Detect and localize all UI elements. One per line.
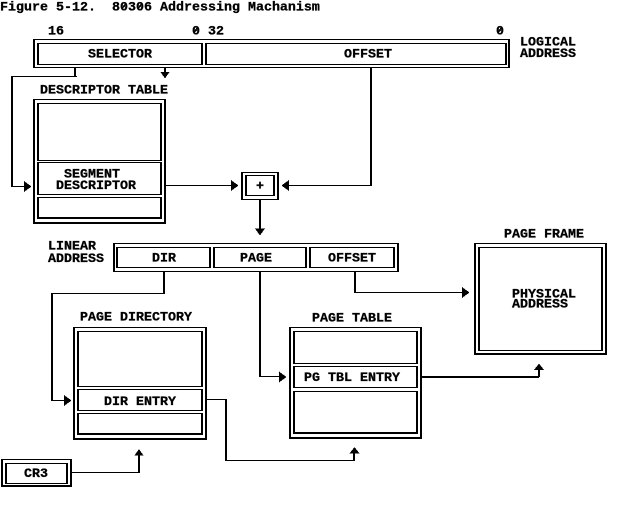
svg-text:OFFSET: OFFSET xyxy=(328,252,376,267)
svg-text:+: + xyxy=(256,180,264,195)
svg-text:ADDRESS: ADDRESS xyxy=(48,252,104,267)
svg-text:Figure 5-12. 80306 Addressing: Figure 5-12. 80306 Addressing Machanism xyxy=(0,1,320,16)
svg-text:PAGE FRAME: PAGE FRAME xyxy=(504,228,584,243)
svg-text:DESCRIPTOR TABLE: DESCRIPTOR TABLE xyxy=(40,84,168,99)
svg-text:ADDRESS: ADDRESS xyxy=(512,298,568,313)
svg-text:OFFSET: OFFSET xyxy=(344,48,392,63)
svg-text:16: 16 xyxy=(48,24,64,39)
svg-text:DIR: DIR xyxy=(152,252,176,267)
svg-text:DESCRIPTOR: DESCRIPTOR xyxy=(56,179,136,194)
svg-text:PAGE: PAGE xyxy=(240,252,272,267)
svg-text:SELECTOR: SELECTOR xyxy=(88,48,152,63)
svg-text:PAGE DIRECTORY: PAGE DIRECTORY xyxy=(80,311,192,326)
svg-text:PG TBL ENTRY: PG TBL ENTRY xyxy=(304,371,400,386)
svg-text:DIR ENTRY: DIR ENTRY xyxy=(104,395,176,410)
svg-text:CR3: CR3 xyxy=(24,467,48,482)
svg-text:0 32: 0 32 xyxy=(192,24,224,39)
svg-text:PAGE TABLE: PAGE TABLE xyxy=(312,311,392,326)
svg-text:0: 0 xyxy=(496,24,504,39)
svg-text:ADDRESS: ADDRESS xyxy=(520,47,576,62)
